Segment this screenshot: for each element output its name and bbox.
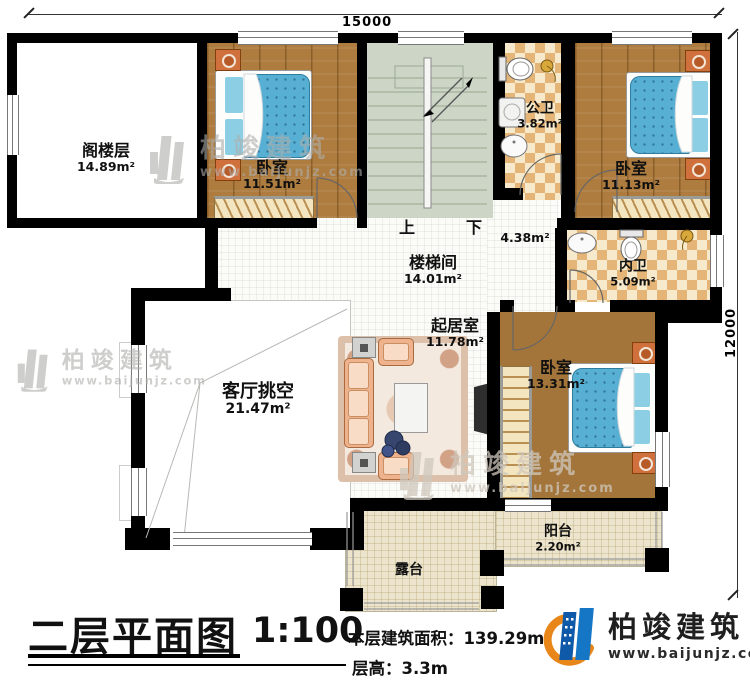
room-label-void: 客厅挑空 21.47m² [222, 382, 294, 418]
bed-pillow [224, 76, 244, 114]
terrace-floor [345, 507, 497, 612]
nightstand [215, 159, 241, 181]
window [655, 432, 670, 487]
bed-pillow [632, 409, 651, 445]
window [398, 31, 464, 45]
sofa [344, 358, 374, 448]
room-label-bedroom-right: 卧室 11.13m² [602, 160, 660, 192]
room-label-terrace: 露台 [395, 563, 423, 579]
room-label-bedroom-bottom: 卧室 13.31m² [527, 359, 585, 391]
bed-pillow [690, 80, 709, 116]
armchair [378, 452, 414, 480]
column [480, 550, 504, 576]
nightstand [685, 158, 711, 180]
bed-pillow [224, 118, 244, 156]
title-underline-thick [28, 654, 240, 658]
bed-mattress [244, 74, 310, 158]
title-underline-thin [28, 664, 346, 666]
wall [557, 218, 722, 230]
stairwell-floor [367, 43, 493, 218]
top-dimension-label: 15000 [342, 15, 392, 30]
brand-name: 柏竣建筑 [608, 613, 750, 642]
wall [197, 33, 207, 228]
room-label-stairwell: 楼梯间 14.01m² [404, 254, 462, 286]
wall [205, 218, 218, 301]
wall [363, 498, 487, 511]
wall [357, 33, 367, 228]
wall [493, 33, 505, 198]
room-label-public-bath: 公卫 3.82m² [517, 102, 562, 131]
bed-pillow [632, 372, 651, 408]
armchair [378, 338, 414, 366]
window [173, 532, 312, 546]
window [131, 468, 147, 516]
watermark-logo-icon [16, 346, 55, 392]
window [238, 31, 338, 45]
column [340, 588, 363, 611]
wall [493, 188, 523, 200]
void-floor [145, 300, 351, 543]
room-label-inner-bath: 内卫 5.09m² [610, 260, 655, 289]
side-table [352, 452, 376, 473]
plan-scale: 1:100 [252, 611, 363, 651]
nightstand [632, 342, 657, 364]
attic-floor [17, 43, 197, 218]
brand-building-icon [540, 606, 598, 668]
wall [7, 218, 217, 228]
wall [555, 300, 575, 312]
nightstand [215, 49, 241, 71]
nightstand [632, 452, 657, 474]
room-label-living: 起居室 11.78m² [426, 317, 484, 349]
room-label-attic: 阁楼层 14.89m² [77, 142, 135, 174]
floor-height-text: 层高：3.3m [352, 655, 448, 679]
column [645, 548, 669, 572]
brand-website: www.baijunjz.com [608, 646, 750, 662]
dimension-tick [713, 7, 724, 18]
wall [500, 300, 514, 312]
room-label-bedroom-top: 卧室 11.51m² [243, 159, 301, 191]
side-table [352, 337, 376, 358]
dimension-tick [23, 7, 34, 18]
window [612, 31, 692, 45]
stair-up-label: 上 [399, 214, 415, 238]
bed-pillow [690, 117, 709, 153]
floor-area-text: 本层建筑面积：139.29m² [348, 625, 552, 649]
floor-plan-canvas: 15000 12000 [0, 0, 750, 683]
wall [7, 33, 207, 43]
right-dimension-label: 12000 [724, 308, 739, 358]
nightstand [685, 50, 711, 72]
window [7, 95, 19, 155]
wall [487, 312, 500, 510]
hallway-area-label: 4.38m² [500, 231, 549, 245]
coffee-table [394, 383, 428, 433]
wall [561, 33, 575, 218]
window [131, 345, 147, 393]
window [710, 235, 724, 287]
wall [207, 218, 317, 228]
window [505, 499, 551, 512]
brand-logo: 柏竣建筑 www.baijunjz.com [540, 606, 750, 668]
wall [310, 528, 362, 550]
hallway-floor [487, 198, 559, 314]
stair-down-label: 下 [466, 214, 482, 238]
room-label-balcony: 阳台 2.20m² [535, 525, 580, 554]
bed-mattress [630, 76, 690, 154]
column [481, 586, 504, 609]
